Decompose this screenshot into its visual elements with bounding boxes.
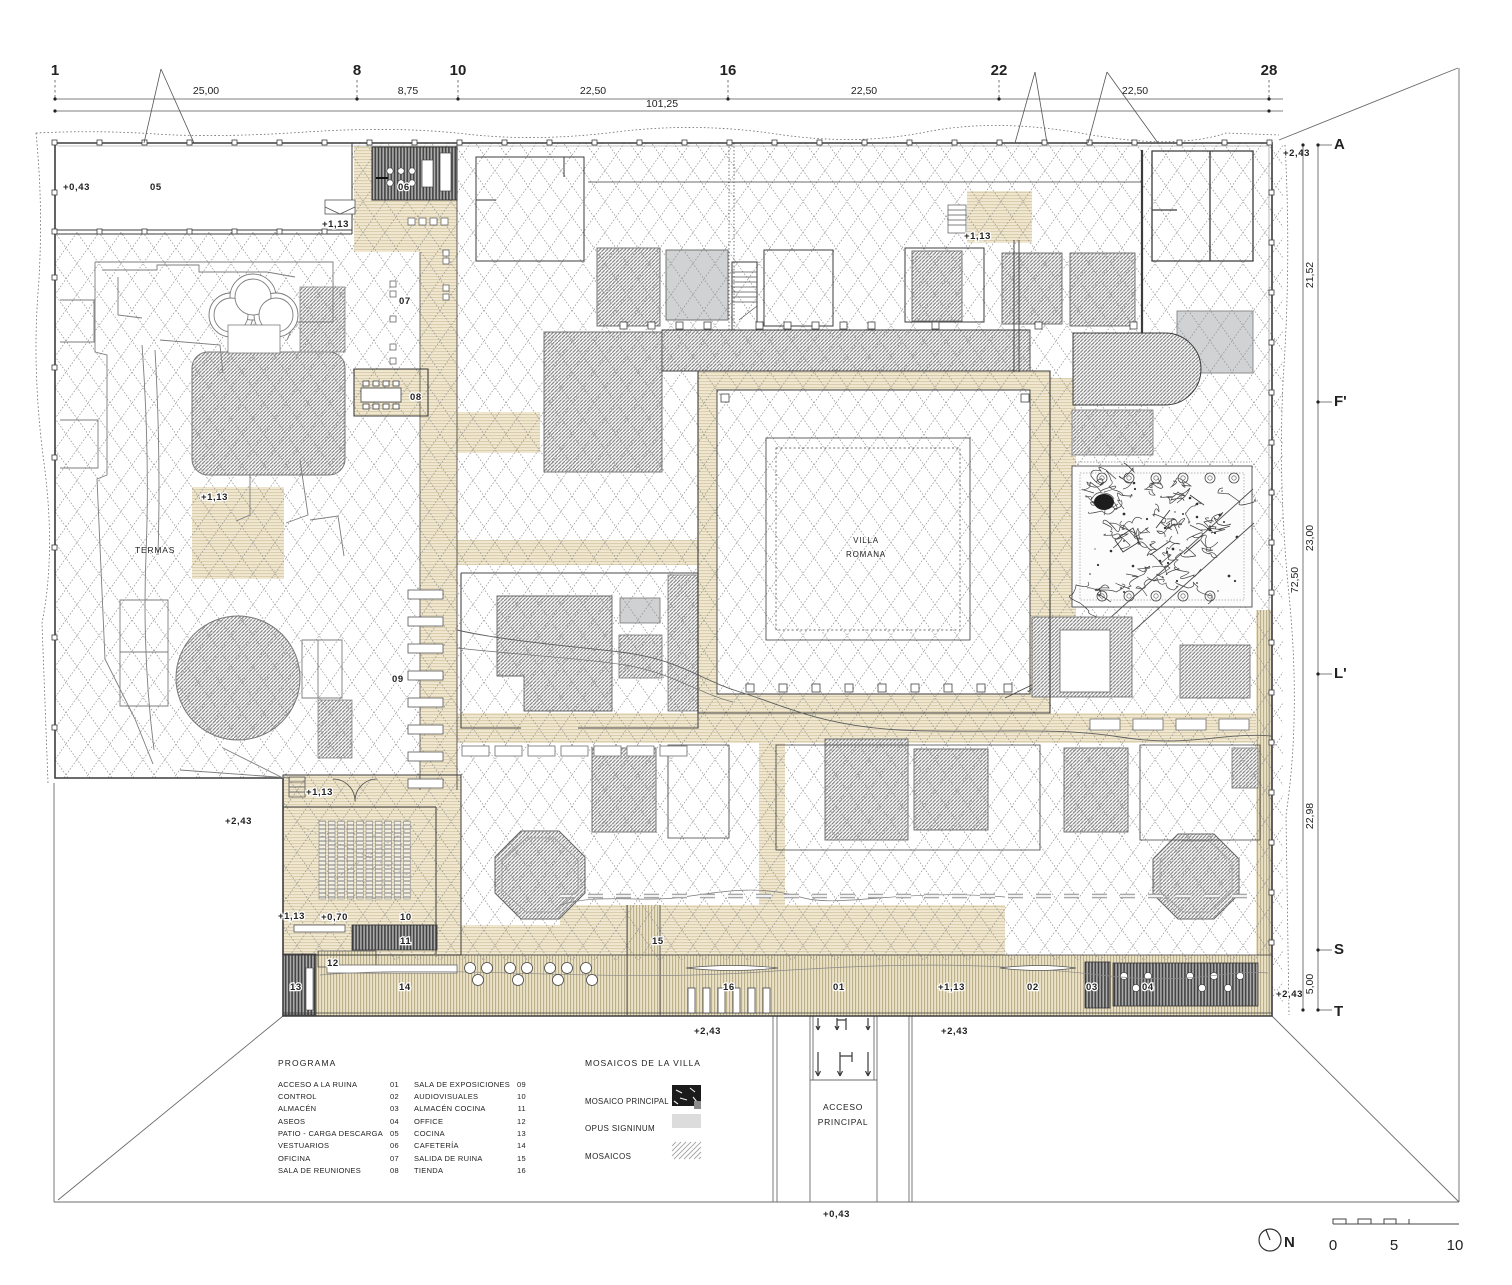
svg-text:T: T xyxy=(1334,1003,1343,1020)
svg-text:02: 02 xyxy=(1027,982,1039,993)
svg-text:04: 04 xyxy=(1142,982,1154,993)
svg-text:+2,43: +2,43 xyxy=(941,1026,968,1037)
svg-text:10: 10 xyxy=(450,62,467,79)
svg-text:F': F' xyxy=(1334,393,1347,410)
svg-text:CONTROL: CONTROL xyxy=(278,1092,317,1101)
svg-text:08: 08 xyxy=(390,1166,399,1175)
svg-text:01: 01 xyxy=(390,1080,399,1089)
svg-text:12: 12 xyxy=(327,958,339,969)
svg-text:07: 07 xyxy=(390,1154,399,1163)
svg-text:+1,13: +1,13 xyxy=(278,911,305,922)
svg-text:VESTUARIOS: VESTUARIOS xyxy=(278,1141,329,1150)
svg-text:03: 03 xyxy=(390,1104,399,1113)
svg-text:14: 14 xyxy=(399,982,411,993)
svg-text:10: 10 xyxy=(517,1092,526,1101)
svg-text:+1,13: +1,13 xyxy=(964,231,991,242)
svg-text:+0,43: +0,43 xyxy=(63,182,90,193)
svg-text:8: 8 xyxy=(353,62,361,79)
svg-text:1: 1 xyxy=(51,62,59,79)
svg-text:02: 02 xyxy=(390,1092,399,1101)
svg-text:22,98: 22,98 xyxy=(1304,803,1316,829)
svg-text:+2,43: +2,43 xyxy=(1283,148,1310,159)
svg-text:PRINCIPAL: PRINCIPAL xyxy=(818,1117,869,1127)
svg-text:06: 06 xyxy=(390,1141,399,1150)
svg-text:28: 28 xyxy=(1261,62,1278,79)
svg-text:+1,13: +1,13 xyxy=(938,982,965,993)
svg-text:15: 15 xyxy=(517,1154,526,1163)
svg-text:ACCESO A LA RUINA: ACCESO A LA RUINA xyxy=(278,1080,357,1089)
svg-text:03: 03 xyxy=(1086,982,1098,993)
svg-text:COCINA: COCINA xyxy=(414,1129,445,1138)
svg-text:MOSAICOS DE LA VILLA: MOSAICOS DE LA VILLA xyxy=(585,1058,701,1068)
svg-text:72,50: 72,50 xyxy=(1289,567,1301,593)
svg-text:25,00: 25,00 xyxy=(193,85,219,97)
svg-text:22,50: 22,50 xyxy=(580,85,606,97)
svg-text:+2,43: +2,43 xyxy=(1276,989,1303,1000)
svg-text:VILLA: VILLA xyxy=(853,536,879,545)
svg-text:+1,13: +1,13 xyxy=(322,219,349,230)
svg-text:CAFETERÍA: CAFETERÍA xyxy=(414,1141,459,1150)
svg-text:23,00: 23,00 xyxy=(1304,525,1316,551)
svg-text:PATIO - CARGA DESCARGA: PATIO - CARGA DESCARGA xyxy=(278,1129,383,1138)
svg-text:15: 15 xyxy=(652,936,664,947)
svg-text:06: 06 xyxy=(398,182,410,193)
svg-text:ROMANA: ROMANA xyxy=(846,550,886,559)
svg-text:10: 10 xyxy=(1447,1237,1464,1254)
svg-text:07: 07 xyxy=(399,296,411,307)
svg-text:ASEOS: ASEOS xyxy=(278,1117,305,1126)
svg-text:11: 11 xyxy=(518,1104,526,1113)
svg-text:ACCESO: ACCESO xyxy=(823,1102,863,1112)
svg-text:14: 14 xyxy=(517,1141,526,1150)
svg-text:22,50: 22,50 xyxy=(1122,85,1148,97)
svg-text:13: 13 xyxy=(517,1129,526,1138)
svg-text:OFICINA: OFICINA xyxy=(278,1154,311,1163)
svg-text:101,25: 101,25 xyxy=(646,98,678,110)
svg-text:PROGRAMA: PROGRAMA xyxy=(278,1058,336,1068)
svg-text:SALIDA DE RUINA: SALIDA DE RUINA xyxy=(414,1154,483,1163)
svg-text:04: 04 xyxy=(390,1117,399,1126)
svg-text:22: 22 xyxy=(991,62,1008,79)
svg-text:11: 11 xyxy=(400,936,411,947)
svg-text:05: 05 xyxy=(390,1129,399,1138)
svg-text:S: S xyxy=(1334,941,1344,958)
svg-text:22,50: 22,50 xyxy=(851,85,877,97)
svg-text:OFFICE: OFFICE xyxy=(414,1117,443,1126)
svg-text:+1,13: +1,13 xyxy=(306,787,333,798)
svg-text:5,00: 5,00 xyxy=(1304,974,1316,995)
svg-text:AUDIOVISUALES: AUDIOVISUALES xyxy=(414,1092,478,1101)
svg-text:5: 5 xyxy=(1390,1237,1398,1254)
svg-text:16: 16 xyxy=(517,1166,526,1175)
svg-text:16: 16 xyxy=(720,62,737,79)
svg-text:+0,70: +0,70 xyxy=(321,912,348,923)
svg-text:A: A xyxy=(1334,136,1345,153)
svg-text:+1,13: +1,13 xyxy=(201,492,228,503)
svg-text:ALMACÉN COCINA: ALMACÉN COCINA xyxy=(414,1104,486,1113)
svg-text:MOSAICO PRINCIPAL: MOSAICO PRINCIPAL xyxy=(585,1097,669,1106)
svg-text:+2,43: +2,43 xyxy=(225,816,252,827)
svg-text:8,75: 8,75 xyxy=(398,85,419,97)
svg-text:16: 16 xyxy=(723,982,735,993)
svg-text:TERMAS: TERMAS xyxy=(135,545,175,555)
svg-text:12: 12 xyxy=(517,1117,526,1126)
svg-text:08: 08 xyxy=(410,392,422,403)
svg-text:09: 09 xyxy=(517,1080,526,1089)
svg-text:SALA DE EXPOSICIONES: SALA DE EXPOSICIONES xyxy=(414,1080,510,1089)
svg-text:TIENDA: TIENDA xyxy=(414,1166,443,1175)
svg-text:21,52: 21,52 xyxy=(1304,262,1316,288)
svg-text:01: 01 xyxy=(833,982,845,993)
svg-text:N: N xyxy=(1284,1234,1295,1251)
svg-text:05: 05 xyxy=(150,182,162,193)
svg-text:SALA DE REUNIONES: SALA DE REUNIONES xyxy=(278,1166,361,1175)
svg-text:MOSAICOS: MOSAICOS xyxy=(585,1152,631,1161)
svg-text:+0,43: +0,43 xyxy=(823,1209,850,1220)
svg-text:OPUS SIGNINUM: OPUS SIGNINUM xyxy=(585,1124,655,1133)
svg-text:0: 0 xyxy=(1329,1237,1337,1254)
svg-text:ALMACÉN: ALMACÉN xyxy=(278,1104,316,1113)
svg-text:10: 10 xyxy=(400,912,412,923)
svg-text:09: 09 xyxy=(392,674,404,685)
svg-text:+2,43: +2,43 xyxy=(694,1026,721,1037)
svg-text:13: 13 xyxy=(290,982,302,993)
svg-text:L': L' xyxy=(1334,665,1347,682)
